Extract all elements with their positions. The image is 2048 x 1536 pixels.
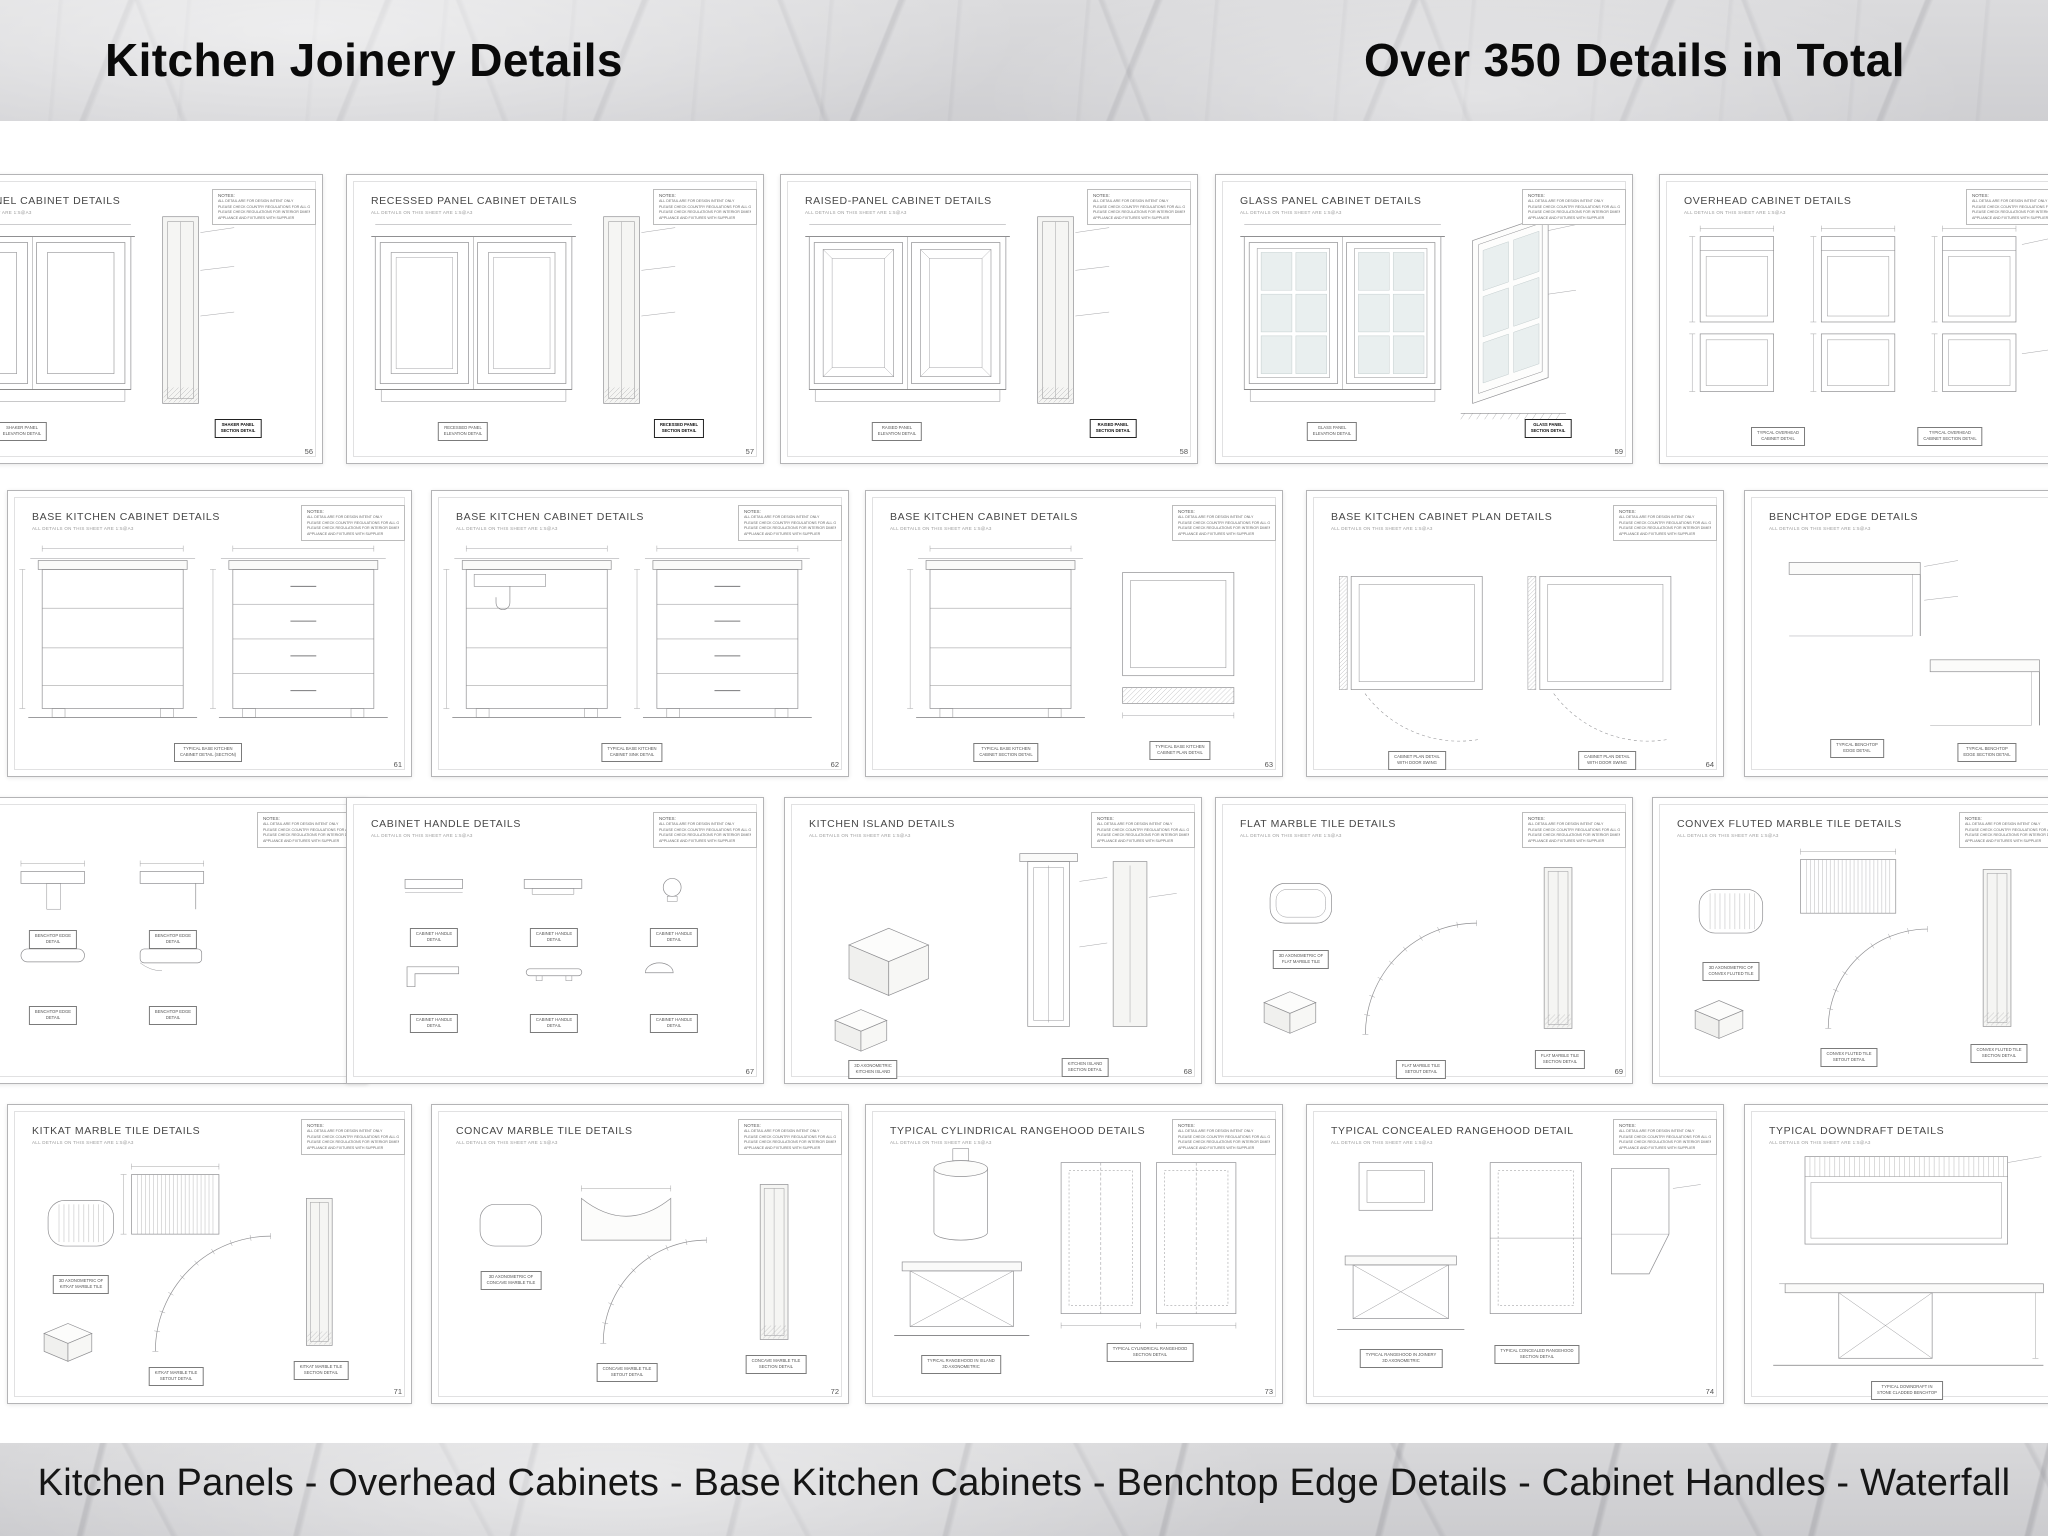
sheet-scale-note: ALL DETAILS ON THIS SHEET ARE 1:5@A3 bbox=[1240, 210, 1342, 215]
notes-line: APPLIANCE AND FIXTURES WITH SUPPLIER bbox=[659, 839, 751, 845]
detail-label: CABINET HANDLEDETAIL bbox=[530, 928, 578, 947]
sheet-title: FLAT MARBLE TILE DETAILS bbox=[1240, 818, 1396, 830]
detail-label-line2: STONE CLADDED BENCHTOP bbox=[1877, 1390, 1937, 1396]
sheet-title: CONCAV MARBLE TILE DETAILS bbox=[456, 1125, 633, 1137]
page-number: 74 bbox=[1706, 1387, 1714, 1396]
sheet-drawing bbox=[1745, 1105, 2048, 1403]
detail-label: FLAT MARBLE TILESETOUT DETAIL bbox=[1396, 1060, 1446, 1079]
detail-label: TYPICAL RANGEHOOD IN JOINERY3D AXONOMETR… bbox=[1360, 1349, 1443, 1368]
notes-line: PLEASE CHECK REGULATIONS FOR INTERIOR DI… bbox=[1093, 210, 1185, 216]
notes-line: APPLIANCE AND FIXTURES WITH SUPPLIER bbox=[218, 216, 310, 222]
page-number: 71 bbox=[394, 1387, 402, 1396]
notes-title: NOTES: bbox=[1528, 816, 1620, 821]
detail-label-line2: DETAIL bbox=[416, 1023, 452, 1029]
notes-box: NOTES:ALL DETAIL ARE FOR DESIGN INTENT O… bbox=[1966, 189, 2048, 225]
notes-title: NOTES: bbox=[1528, 193, 1620, 198]
sheet-drawing bbox=[1745, 491, 2048, 776]
sheet-title: CONVEX FLUTED MARBLE TILE DETAILS bbox=[1677, 818, 1902, 830]
detail-label-line2: SECTION DETAIL bbox=[1113, 1352, 1188, 1358]
detail-label-line2: DETAIL bbox=[416, 937, 452, 943]
page-number: 69 bbox=[1615, 1067, 1623, 1076]
detail-label: CONVEX FLUTED TILESECTION DETAIL bbox=[1970, 1044, 2027, 1063]
detail-label-line2: DETAIL bbox=[155, 1015, 191, 1021]
detail-label: TYPICAL RANGEHOOD IN ISLAND3D AXONOMETRI… bbox=[921, 1355, 1001, 1374]
sheet-title: BENCHTOP EDGE DETAILS bbox=[1769, 511, 1918, 523]
detail-label-line2: DETAIL bbox=[536, 937, 572, 943]
sheet-scale-note: ALL DETAILS ON THIS SHEET ARE 1:5@A3 bbox=[0, 210, 32, 215]
sheet-scale-note: ALL DETAILS ON THIS SHEET ARE 1:5@A3 bbox=[456, 526, 558, 531]
notes-box: NOTES:ALL DETAIL ARE FOR DESIGN INTENT O… bbox=[212, 189, 316, 225]
detail-label: TYPICAL BASE KITCHENCABINET PLAN DETAIL bbox=[1149, 741, 1210, 760]
notes-line: PLEASE CHECK REGULATIONS FOR INTERIOR DI… bbox=[1528, 210, 1620, 216]
sheet-raised-panel: RAISED-PANEL CABINET DETAILSALL DETAILS … bbox=[780, 174, 1198, 464]
sheet-base-cabinet-2: BASE KITCHEN CABINET DETAILSALL DETAILS … bbox=[431, 490, 849, 777]
sheet-title: BASE KITCHEN CABINET PLAN DETAILS bbox=[1331, 511, 1552, 523]
notes-line: PLEASE CHECK REGULATIONS FOR INTERIOR DI… bbox=[1178, 1140, 1270, 1146]
detail-label-line2: SECTION DETAIL bbox=[1531, 428, 1566, 434]
notes-box: NOTES:ALL DETAIL ARE FOR DESIGN INTENT O… bbox=[1172, 505, 1276, 541]
detail-label-line2: 3D AXONOMETRIC bbox=[1366, 1358, 1437, 1364]
detail-label-line2: SETOUT DETAIL bbox=[1826, 1057, 1871, 1063]
sheet-title: CABINET HANDLE DETAILS bbox=[371, 818, 521, 830]
detail-label-line2: EDGE SECTION DETAIL bbox=[1963, 752, 2010, 758]
detail-label: FLAT MARBLE TILESECTION DETAIL bbox=[1535, 1050, 1585, 1069]
notes-box: NOTES:ALL DETAIL ARE FOR DESIGN INTENT O… bbox=[653, 189, 757, 225]
page-number: 68 bbox=[1184, 1067, 1192, 1076]
notes-line: APPLIANCE AND FIXTURES WITH SUPPLIER bbox=[1619, 1146, 1711, 1152]
notes-box: NOTES:ALL DETAIL ARE FOR DESIGN INTENT O… bbox=[1613, 1119, 1717, 1155]
sheet-recessed-panel: RECESSED PANEL CABINET DETAILSALL DETAIL… bbox=[346, 174, 764, 464]
notes-title: NOTES: bbox=[307, 509, 399, 514]
sheet-title: KITKAT MARBLE TILE DETAILS bbox=[32, 1125, 200, 1137]
sheet-edge-profiles: NOTES:ALL DETAIL ARE FOR DESIGN INTENT O… bbox=[0, 797, 368, 1084]
detail-label-line2: DETAIL bbox=[656, 1023, 692, 1029]
detail-label-line2: SETOUT DETAIL bbox=[1402, 1069, 1440, 1075]
detail-label: SHAKER PANELSECTION DETAIL bbox=[215, 419, 262, 438]
detail-label-line2: CONVEX FLUTED TILE bbox=[1708, 971, 1753, 977]
sheet-scale-note: ALL DETAILS ON THIS SHEET ARE 1:5@A3 bbox=[1677, 833, 1779, 838]
detail-label-line2: CABINET DETAIL bbox=[1757, 436, 1799, 442]
sheet-scale-note: ALL DETAILS ON THIS SHEET ARE 1:5@A3 bbox=[371, 210, 473, 215]
detail-label: TYPICAL OVERHEADCABINET SECTION DETAIL bbox=[1917, 427, 1982, 446]
notes-box: NOTES:ALL DETAIL ARE FOR DESIGN INTENT O… bbox=[1522, 189, 1626, 225]
page-number: 67 bbox=[746, 1067, 754, 1076]
detail-label: TYPICAL BASE KITCHENCABINET DETAIL (SECT… bbox=[174, 743, 242, 762]
notes-title: NOTES: bbox=[1178, 1123, 1270, 1128]
notes-line: PLEASE CHECK REGULATIONS FOR INTERIOR DI… bbox=[263, 833, 355, 839]
page-number: 57 bbox=[746, 447, 754, 456]
notes-line: PLEASE CHECK REGULATIONS FOR INTERIOR DI… bbox=[1178, 526, 1270, 532]
detail-label-line2: DETAIL bbox=[536, 1023, 572, 1029]
notes-title: NOTES: bbox=[1619, 509, 1711, 514]
notes-line: APPLIANCE AND FIXTURES WITH SUPPLIER bbox=[263, 839, 355, 845]
notes-line: APPLIANCE AND FIXTURES WITH SUPPLIER bbox=[744, 532, 836, 538]
sheet-title: KITCHEN ISLAND DETAILS bbox=[809, 818, 955, 830]
page-number: 73 bbox=[1265, 1387, 1273, 1396]
notes-title: NOTES: bbox=[307, 1123, 399, 1128]
notes-title: NOTES: bbox=[659, 193, 751, 198]
detail-label-line2: DETAIL bbox=[35, 939, 71, 945]
sheet-convex-fluted-tile: CONVEX FLUTED MARBLE TILE DETAILSALL DET… bbox=[1652, 797, 2048, 1084]
sheet-scale-note: ALL DETAILS ON THIS SHEET ARE 1:5@A3 bbox=[1769, 1140, 1871, 1145]
detail-label-line2: CABINET DETAIL (SECTION) bbox=[180, 752, 236, 758]
notes-line: APPLIANCE AND FIXTURES WITH SUPPLIER bbox=[744, 1146, 836, 1152]
detail-label: TYPICAL CYLINDRICAL RANGEHOODSECTION DET… bbox=[1107, 1343, 1194, 1362]
detail-label: BENCHTOP EDGEDETAIL bbox=[149, 930, 197, 949]
detail-label: BENCHTOP EDGEDETAIL bbox=[149, 1006, 197, 1025]
notes-line: APPLIANCE AND FIXTURES WITH SUPPLIER bbox=[1093, 216, 1185, 222]
notes-box: NOTES:ALL DETAIL ARE FOR DESIGN INTENT O… bbox=[1522, 812, 1626, 848]
notes-box: NOTES:ALL DETAIL ARE FOR DESIGN INTENT O… bbox=[301, 1119, 405, 1155]
sheet-scale-note: ALL DETAILS ON THIS SHEET ARE 1:5@A3 bbox=[890, 526, 992, 531]
sheet-concealed-rangehood: TYPICAL CONCEALED RANGEHOOD DETAILALL DE… bbox=[1306, 1104, 1724, 1404]
sheet-downdraft: TYPICAL DOWNDRAFT DETAILSALL DETAILS ON … bbox=[1744, 1104, 2048, 1404]
detail-label: RECESSED PANELSECTION DETAIL bbox=[654, 419, 704, 438]
sheet-title: TYPICAL CYLINDRICAL RANGEHOOD DETAILS bbox=[890, 1125, 1145, 1137]
sheet-kitchen-island: KITCHEN ISLAND DETAILSALL DETAILS ON THI… bbox=[784, 797, 1202, 1084]
notes-line: APPLIANCE AND FIXTURES WITH SUPPLIER bbox=[1178, 1146, 1270, 1152]
sheet-concav-tile: CONCAV MARBLE TILE DETAILSALL DETAILS ON… bbox=[431, 1104, 849, 1404]
detail-label: TYPICAL BENCHTOPEDGE DETAIL bbox=[1830, 739, 1884, 758]
notes-title: NOTES: bbox=[659, 816, 751, 821]
detail-label: CABINET HANDLEDETAIL bbox=[410, 928, 458, 947]
notes-line: PLEASE CHECK REGULATIONS FOR INTERIOR DI… bbox=[1965, 833, 2048, 839]
sheet-title: TYPICAL DOWNDRAFT DETAILS bbox=[1769, 1125, 1944, 1137]
sheet-shaker-panel: SHAKER PANEL CABINET DETAILSALL DETAILS … bbox=[0, 174, 323, 464]
detail-label-line2: CABINET PLAN DETAIL bbox=[1155, 750, 1204, 756]
sheet-title: RAISED-PANEL CABINET DETAILS bbox=[805, 195, 992, 207]
page-number: 61 bbox=[394, 760, 402, 769]
sheet-title: BASE KITCHEN CABINET DETAILS bbox=[890, 511, 1078, 523]
detail-label: 3D AXONOMETRIC OFKITKAT MARBLE TILE bbox=[53, 1275, 109, 1294]
notes-line: APPLIANCE AND FIXTURES WITH SUPPLIER bbox=[307, 1146, 399, 1152]
sheet-title: SHAKER PANEL CABINET DETAILS bbox=[0, 195, 120, 207]
notes-title: NOTES: bbox=[1097, 816, 1189, 821]
notes-title: NOTES: bbox=[744, 1123, 836, 1128]
notes-box: NOTES:ALL DETAIL ARE FOR DESIGN INTENT O… bbox=[1172, 1119, 1276, 1155]
detail-label: RECESSED PANELELEVATION DETAIL bbox=[438, 422, 488, 441]
notes-line: APPLIANCE AND FIXTURES WITH SUPPLIER bbox=[1178, 532, 1270, 538]
sheet-title: RECESSED PANEL CABINET DETAILS bbox=[371, 195, 577, 207]
detail-label-line2: EDGE DETAIL bbox=[1836, 748, 1878, 754]
detail-label: CABINET HANDLEDETAIL bbox=[530, 1014, 578, 1033]
detail-label-line2: SECTION DETAIL bbox=[1976, 1053, 2021, 1059]
notes-line: APPLIANCE AND FIXTURES WITH SUPPLIER bbox=[659, 216, 751, 222]
detail-label: TYPICAL BENCHTOPEDGE SECTION DETAIL bbox=[1957, 743, 2016, 762]
notes-title: NOTES: bbox=[1178, 509, 1270, 514]
sheet-overhead-cabinet: OVERHEAD CABINET DETAILSALL DETAILS ON T… bbox=[1659, 174, 2048, 464]
notes-line: PLEASE CHECK REGULATIONS FOR INTERIOR DI… bbox=[307, 1140, 399, 1146]
detail-label: CABINET PLAN DETAILWITH DOOR SWING bbox=[1578, 751, 1636, 770]
sheet-base-cabinet-plan: BASE KITCHEN CABINET PLAN DETAILSALL DET… bbox=[1306, 490, 1724, 777]
sheet-base-cabinet-3: BASE KITCHEN CABINET DETAILSALL DETAILS … bbox=[865, 490, 1283, 777]
sheet-scale-note: ALL DETAILS ON THIS SHEET ARE 1:5@A3 bbox=[1240, 833, 1342, 838]
sheet-benchtop-edge: BENCHTOP EDGE DETAILSALL DETAILS ON THIS… bbox=[1744, 490, 2048, 777]
detail-label-line2: SECTION DETAIL bbox=[1096, 428, 1131, 434]
notes-line: PLEASE CHECK REGULATIONS FOR INTERIOR DI… bbox=[1619, 1140, 1711, 1146]
detail-label-line2: KITKAT MARBLE TILE bbox=[59, 1284, 103, 1290]
page-number: 64 bbox=[1706, 760, 1714, 769]
notes-box: NOTES:ALL DETAIL ARE FOR DESIGN INTENT O… bbox=[738, 505, 842, 541]
sheet-glass-panel: GLASS PANEL CABINET DETAILSALL DETAILS O… bbox=[1215, 174, 1633, 464]
detail-label: RAISED PANELSECTION DETAIL bbox=[1090, 419, 1137, 438]
detail-label: KITCHEN ISLANDSECTION DETAIL bbox=[1062, 1058, 1109, 1077]
notes-line: PLEASE CHECK REGULATIONS FOR INTERIOR DI… bbox=[744, 526, 836, 532]
sheet-scale-note: ALL DETAILS ON THIS SHEET ARE 1:5@A3 bbox=[1684, 210, 1786, 215]
detail-label: 3D AXONOMETRICKITCHEN ISLAND bbox=[848, 1060, 897, 1079]
footer-caption: Kitchen Panels - Overhead Cabinets - Bas… bbox=[0, 1462, 2048, 1505]
detail-label-line2: SETOUT DETAIL bbox=[603, 1372, 652, 1378]
sheet-scale-note: ALL DETAILS ON THIS SHEET ARE 1:5@A3 bbox=[1331, 1140, 1433, 1145]
page-subtitle-count: Over 350 Details in Total bbox=[1364, 33, 1905, 87]
notes-box: NOTES:ALL DETAIL ARE FOR DESIGN INTENT O… bbox=[653, 812, 757, 848]
notes-title: NOTES: bbox=[1619, 1123, 1711, 1128]
sheet-scale-note: ALL DETAILS ON THIS SHEET ARE 1:5@A3 bbox=[1769, 526, 1871, 531]
notes-line: PLEASE CHECK REGULATIONS FOR INTERIOR DI… bbox=[1097, 833, 1189, 839]
detail-label: RAISED PANELELEVATION DETAIL bbox=[872, 422, 922, 441]
detail-label: BENCHTOP EDGEDETAIL bbox=[29, 1006, 77, 1025]
detail-label: KITKAT MARBLE TILESETOUT DETAIL bbox=[149, 1367, 204, 1386]
sheet-scale-note: ALL DETAILS ON THIS SHEET ARE 1:5@A3 bbox=[809, 833, 911, 838]
detail-label: CONCAVE MARBLE TILESECTION DETAIL bbox=[746, 1355, 807, 1374]
notes-line: PLEASE CHECK REGULATIONS FOR INTERIOR DI… bbox=[744, 1140, 836, 1146]
sheet-base-cabinet-1: BASE KITCHEN CABINET DETAILSALL DETAILS … bbox=[7, 490, 412, 777]
sheet-scale-note: ALL DETAILS ON THIS SHEET ARE 1:5@A3 bbox=[890, 1140, 992, 1145]
detail-label: CABINET HANDLEDETAIL bbox=[650, 1014, 698, 1033]
page-canvas: Kitchen Joinery Details Over 350 Details… bbox=[0, 0, 2048, 1536]
detail-label: 3D AXONOMETRIC OFCONCAVE MARBLE TILE bbox=[481, 1271, 542, 1290]
notes-line: PLEASE CHECK REGULATIONS FOR INTERIOR DI… bbox=[1972, 210, 2048, 216]
detail-label-line2: SETOUT DETAIL bbox=[155, 1376, 198, 1382]
detail-label-line2: SECTION DETAIL bbox=[660, 428, 698, 434]
detail-label-line2: SECTION DETAIL bbox=[1541, 1059, 1579, 1065]
notes-title: NOTES: bbox=[263, 816, 355, 821]
detail-label-line2: SECTION DETAIL bbox=[752, 1364, 801, 1370]
notes-line: PLEASE CHECK REGULATIONS FOR INTERIOR DI… bbox=[218, 210, 310, 216]
notes-title: NOTES: bbox=[744, 509, 836, 514]
notes-line: APPLIANCE AND FIXTURES WITH SUPPLIER bbox=[1965, 839, 2048, 845]
notes-line: PLEASE CHECK REGULATIONS FOR INTERIOR DI… bbox=[1528, 833, 1620, 839]
detail-label: CABINET PLAN DETAILWITH DOOR SWING bbox=[1388, 751, 1446, 770]
detail-label: CONCAVE MARBLE TILESETOUT DETAIL bbox=[597, 1363, 658, 1382]
detail-label: KITKAT MARBLE TILESECTION DETAIL bbox=[294, 1361, 349, 1380]
detail-label-line2: SECTION DETAIL bbox=[1500, 1354, 1573, 1360]
sheet-scale-note: ALL DETAILS ON THIS SHEET ARE 1:5@A3 bbox=[1331, 526, 1433, 531]
notes-title: NOTES: bbox=[1093, 193, 1185, 198]
sheet-title: OVERHEAD CABINET DETAILS bbox=[1684, 195, 1851, 207]
detail-label-line2: DETAIL bbox=[656, 937, 692, 943]
notes-line: APPLIANCE AND FIXTURES WITH SUPPLIER bbox=[1528, 839, 1620, 845]
notes-line: APPLIANCE AND FIXTURES WITH SUPPLIER bbox=[1097, 839, 1189, 845]
detail-label-line2: 3D AXONOMETRIC bbox=[927, 1364, 995, 1370]
detail-label-line2: SECTION DETAIL bbox=[300, 1370, 343, 1376]
detail-label-line2: CABINET SECTION DETAIL bbox=[979, 752, 1032, 758]
detail-label-line2: CONCAVE MARBLE TILE bbox=[487, 1280, 536, 1286]
sheet-kitkat-tile: KITKAT MARBLE TILE DETAILSALL DETAILS ON… bbox=[7, 1104, 412, 1404]
detail-label-line2: ELEVATION DETAIL bbox=[1313, 431, 1351, 437]
sheet-cylindrical-rangehood: TYPICAL CYLINDRICAL RANGEHOOD DETAILSALL… bbox=[865, 1104, 1283, 1404]
page-number: 56 bbox=[305, 447, 313, 456]
detail-label-line2: ELEVATION DETAIL bbox=[878, 431, 916, 437]
page-number: 58 bbox=[1180, 447, 1188, 456]
sheet-scale-note: ALL DETAILS ON THIS SHEET ARE 1:5@A3 bbox=[32, 526, 134, 531]
detail-label: CABINET HANDLEDETAIL bbox=[410, 1014, 458, 1033]
sheet-scale-note: ALL DETAILS ON THIS SHEET ARE 1:5@A3 bbox=[805, 210, 907, 215]
notes-line: APPLIANCE AND FIXTURES WITH SUPPLIER bbox=[1619, 532, 1711, 538]
detail-label-line2: SECTION DETAIL bbox=[221, 428, 256, 434]
detail-label: TYPICAL CONCEALED RANGEHOODSECTION DETAI… bbox=[1494, 1345, 1579, 1364]
notes-title: NOTES: bbox=[1965, 816, 2048, 821]
notes-title: NOTES: bbox=[1972, 193, 2048, 198]
notes-line: PLEASE CHECK REGULATIONS FOR INTERIOR DI… bbox=[659, 210, 751, 216]
detail-label-line2: ELEVATION DETAIL bbox=[3, 431, 41, 437]
page-number: 72 bbox=[831, 1387, 839, 1396]
detail-label: TYPICAL BASE KITCHENCABINET SINK DETAIL bbox=[601, 743, 662, 762]
notes-line: ALL DETAIL ARE FOR DESIGN INTENT ONLY bbox=[1965, 822, 2048, 828]
detail-label: TYPICAL BASE KITCHENCABINET SECTION DETA… bbox=[973, 743, 1038, 762]
sheet-scale-note: ALL DETAILS ON THIS SHEET ARE 1:5@A3 bbox=[371, 833, 473, 838]
notes-box: NOTES:ALL DETAIL ARE FOR DESIGN INTENT O… bbox=[1091, 812, 1195, 848]
notes-box: NOTES:ALL DETAIL ARE FOR DESIGN INTENT O… bbox=[738, 1119, 842, 1155]
detail-label-line2: CABINET SINK DETAIL bbox=[607, 752, 656, 758]
notes-box: NOTES:ALL DETAIL ARE FOR DESIGN INTENT O… bbox=[1613, 505, 1717, 541]
detail-label: TYPICAL DOWNDRAFT INSTONE CLADDED BENCHT… bbox=[1871, 1381, 1943, 1400]
detail-label-line2: DETAIL bbox=[35, 1015, 71, 1021]
detail-label-line2: ELEVATION DETAIL bbox=[444, 431, 482, 437]
notes-line: APPLIANCE AND FIXTURES WITH SUPPLIER bbox=[1528, 216, 1620, 222]
notes-box: NOTES:ALL DETAIL ARE FOR DESIGN INTENT O… bbox=[1087, 189, 1191, 225]
detail-label-line2: WITH DOOR SWING bbox=[1394, 760, 1440, 766]
page-title: Kitchen Joinery Details bbox=[105, 33, 623, 87]
sheet-flat-marble-tile: FLAT MARBLE TILE DETAILSALL DETAILS ON T… bbox=[1215, 797, 1633, 1084]
sheet-scale-note: ALL DETAILS ON THIS SHEET ARE 1:5@A3 bbox=[456, 1140, 558, 1145]
detail-label: GLASS PANELSECTION DETAIL bbox=[1525, 419, 1572, 438]
detail-label: 3D AXONOMETRIC OFCONVEX FLUTED TILE bbox=[1702, 962, 1759, 981]
detail-label-line2: DETAIL bbox=[155, 939, 191, 945]
detail-label: GLASS PANELELEVATION DETAIL bbox=[1307, 422, 1357, 441]
sheet-title: BASE KITCHEN CABINET DETAILS bbox=[32, 511, 220, 523]
notes-line: APPLIANCE AND FIXTURES WITH SUPPLIER bbox=[307, 532, 399, 538]
notes-line: PLEASE CHECK REGULATIONS FOR INTERIOR DI… bbox=[307, 526, 399, 532]
detail-label-line2: SECTION DETAIL bbox=[1068, 1067, 1103, 1073]
notes-line: APPLIANCE AND FIXTURES WITH SUPPLIER bbox=[1972, 216, 2048, 222]
notes-line: PLEASE CHECK REGULATIONS FOR INTERIOR DI… bbox=[659, 833, 751, 839]
notes-line: ALL DETAIL ARE FOR DESIGN INTENT ONLY bbox=[1972, 199, 2048, 205]
notes-box: NOTES:ALL DETAIL ARE FOR DESIGN INTENT O… bbox=[301, 505, 405, 541]
sheet-title: GLASS PANEL CABINET DETAILS bbox=[1240, 195, 1422, 207]
page-number: 63 bbox=[1265, 760, 1273, 769]
detail-label: CABINET HANDLEDETAIL bbox=[650, 928, 698, 947]
page-number: 62 bbox=[831, 760, 839, 769]
detail-label: TYPICAL OVERHEADCABINET DETAIL bbox=[1751, 427, 1805, 446]
notes-line: PLEASE CHECK REGULATIONS FOR INTERIOR DI… bbox=[1619, 526, 1711, 532]
detail-label: CONVEX FLUTED TILESETOUT DETAIL bbox=[1820, 1048, 1877, 1067]
detail-label: SHAKER PANELELEVATION DETAIL bbox=[0, 422, 47, 441]
sheet-title: TYPICAL CONCEALED RANGEHOOD DETAIL bbox=[1331, 1125, 1574, 1137]
sheet-cabinet-handles: CABINET HANDLE DETAILSALL DETAILS ON THI… bbox=[346, 797, 764, 1084]
detail-label-line2: FLAT MARBLE TILE bbox=[1279, 959, 1323, 965]
sheet-scale-note: ALL DETAILS ON THIS SHEET ARE 1:5@A3 bbox=[32, 1140, 134, 1145]
notes-title: NOTES: bbox=[218, 193, 310, 198]
page-number: 59 bbox=[1615, 447, 1623, 456]
detail-label-line2: CABINET SECTION DETAIL bbox=[1923, 436, 1976, 442]
detail-label: BENCHTOP EDGEDETAIL bbox=[29, 930, 77, 949]
notes-box: NOTES:ALL DETAIL ARE FOR DESIGN INTENT O… bbox=[1959, 812, 2048, 848]
sheet-title: BASE KITCHEN CABINET DETAILS bbox=[456, 511, 644, 523]
detail-label-line2: WITH DOOR SWING bbox=[1584, 760, 1630, 766]
detail-label-line2: KITCHEN ISLAND bbox=[854, 1069, 891, 1075]
detail-label: 3D AXONOMETRIC OFFLAT MARBLE TILE bbox=[1273, 950, 1329, 969]
